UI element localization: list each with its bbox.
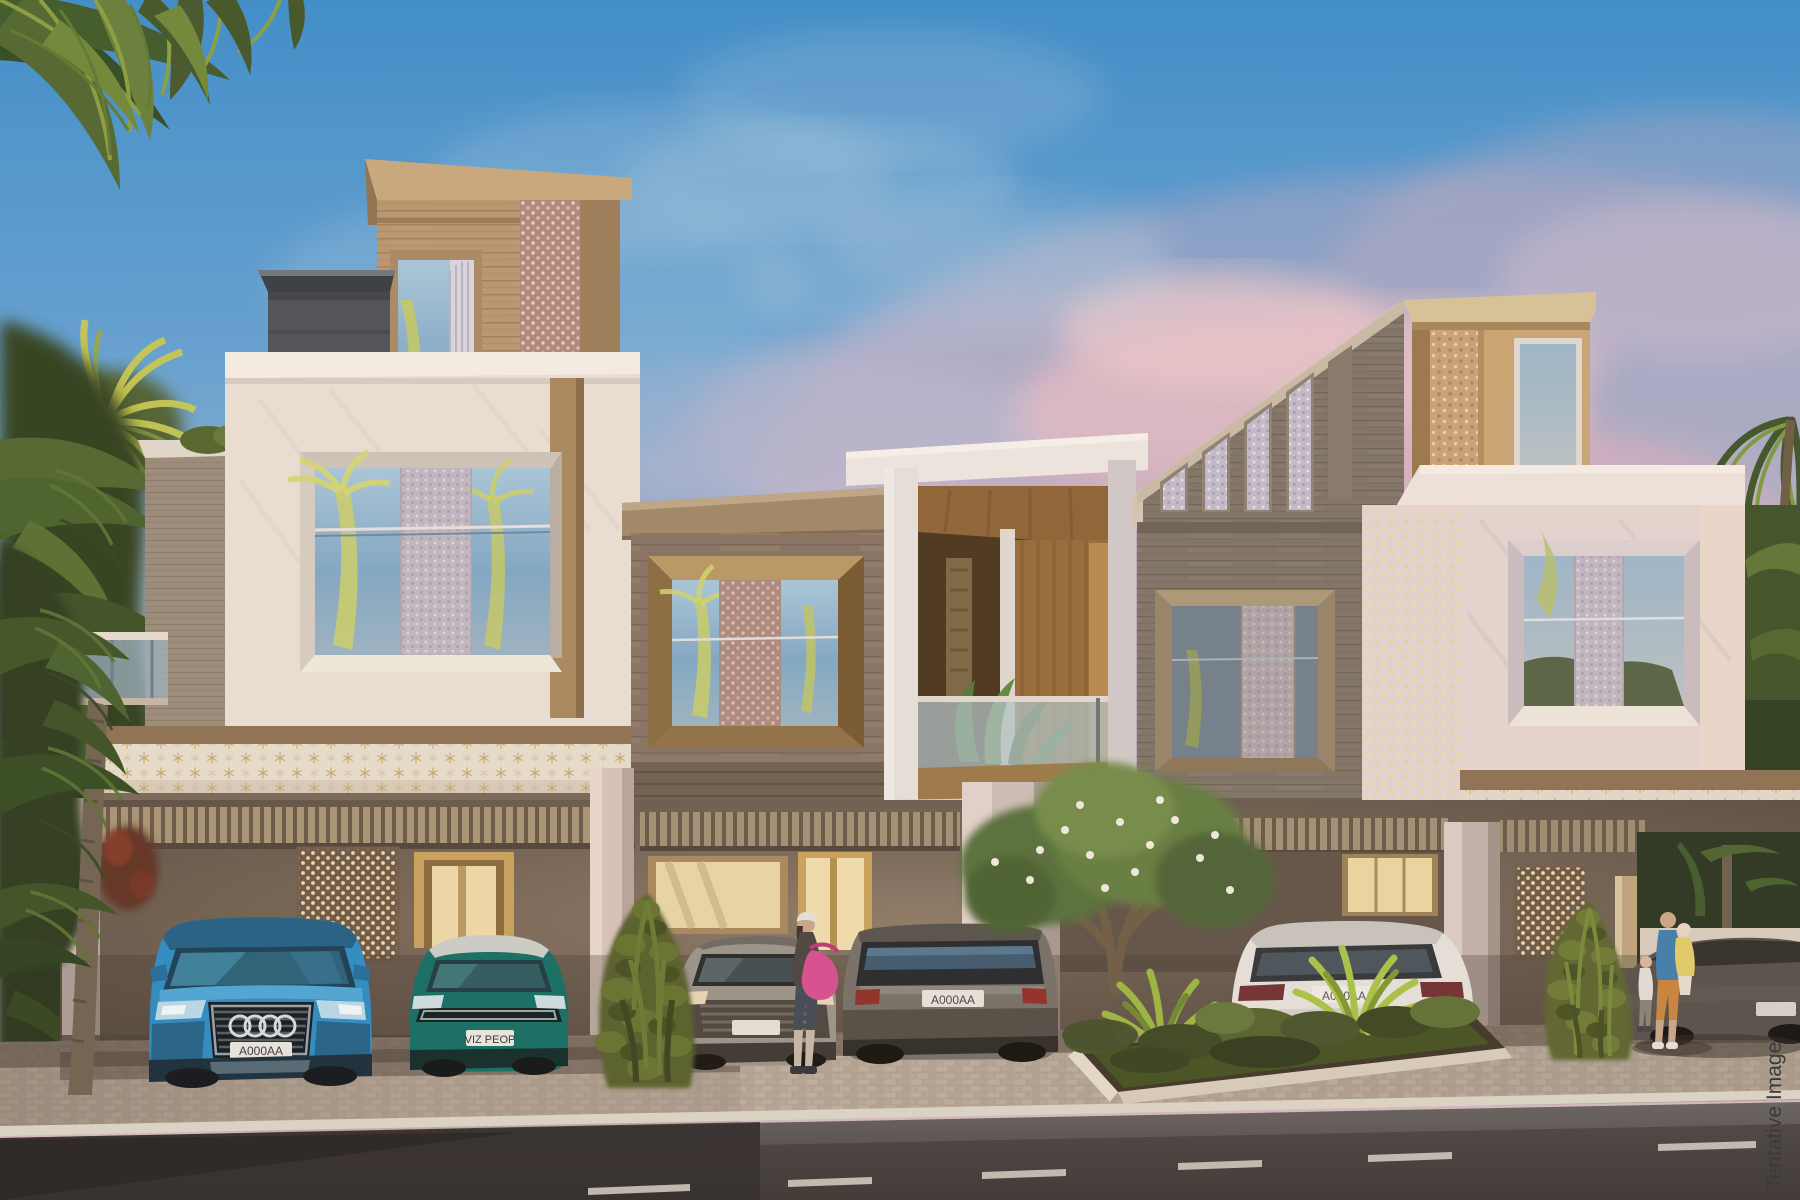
svg-text:Tentative Image: Tentative Image: [1763, 1042, 1786, 1190]
